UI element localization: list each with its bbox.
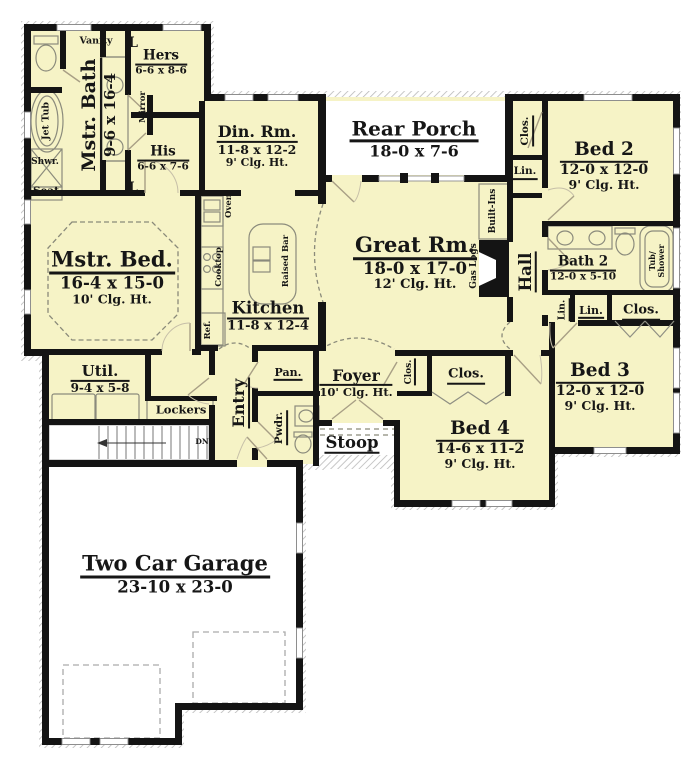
- room-label-kitchen: Kitchen 11-8 x 12-4: [227, 299, 309, 334]
- room-label-foyer: Foyer 10' Clg. Ht.: [319, 367, 392, 399]
- room-label-bed2: Bed 2 12-0 x 12-0 9' Clg. Ht.: [560, 140, 648, 192]
- room-label-hers: Hers 6-6 x 8-6: [135, 49, 187, 78]
- pantry-label: Pan.: [274, 367, 303, 381]
- linen-l-label-bottom: L: [128, 181, 138, 197]
- room-label-bed4: Bed 4 14-6 x 11-2 9' Clg. Ht.: [436, 419, 524, 471]
- entry-label: Entry: [230, 378, 250, 429]
- garage-floor-lower: [49, 700, 175, 738]
- floor-plan-page: Mstr. Bath 9-6 x 16-4 Vanity L L Hers 6-…: [0, 0, 700, 775]
- stoop-hatch: [316, 455, 396, 464]
- shower-label: Shwr.: [31, 157, 59, 167]
- lockers-label: Lockers: [156, 404, 207, 417]
- room-label-garage: Two Car Garage 23-10 x 23-0: [80, 552, 270, 597]
- mstr-bath-dims: 9-6 x 16-4: [102, 58, 119, 173]
- closet-label-bed4: Clos.: [447, 368, 485, 385]
- hall-label: Hall: [517, 252, 537, 293]
- room-label-bed3: Bed 3 12-0 x 12-0 9' Clg. Ht.: [556, 361, 644, 413]
- seat-label: Seat: [33, 186, 59, 198]
- room-label-util: Util. 9-4 x 5-8: [71, 363, 130, 395]
- closet-label-bed3: Clos.: [622, 304, 660, 321]
- room-label-bath2: Bath 2 12-0 x 5-10: [550, 255, 616, 284]
- stoop-label: Stoop: [324, 434, 379, 454]
- mstr-bath-name: Mstr. Bath: [79, 58, 102, 173]
- room-label-his: His 6-6 x 7-6: [137, 145, 189, 174]
- room-label-great-rm: Great Rm. 18-0 x 17-0 12' Clg. Ht.: [353, 233, 477, 293]
- room-label-rear-porch: Rear Porch 18-0 x 7-6: [350, 117, 479, 160]
- jet-tub-label: Jet Tub: [42, 102, 53, 140]
- room-label-dining: Din. Rm. 11-8 x 12-2 9' Clg. Ht.: [217, 123, 298, 169]
- room-label-mstr-bed: Mstr. Bed. 16-4 x 15-0 10' Clg. Ht.: [49, 248, 175, 307]
- built-ins-label: Built-Ins: [488, 189, 498, 234]
- oven-label: Oven: [225, 194, 235, 218]
- closet-label-bed2: Clos.: [520, 116, 534, 147]
- cooktop-label: Cooktop: [215, 247, 225, 287]
- powder-label: Pwdr.: [274, 411, 288, 446]
- gas-logs-label: Gas Logs: [469, 243, 479, 288]
- closet-label-bed4-vert: Clos.: [404, 359, 416, 386]
- vanity-label: Vanity: [79, 37, 112, 48]
- stairs-dn-label: DN: [195, 438, 208, 446]
- linen-label-hall: Lin.: [578, 305, 604, 319]
- tub-shower-label: Tub/ Shower: [648, 244, 666, 277]
- linen-label-bed2: Lin.: [513, 166, 538, 180]
- mirror-label: Mirror: [139, 91, 149, 123]
- raised-bar-label: Raised Bar: [282, 235, 292, 287]
- ref-label: Ref.: [204, 321, 214, 340]
- linen-label-hall-vert: Lin.: [558, 299, 571, 322]
